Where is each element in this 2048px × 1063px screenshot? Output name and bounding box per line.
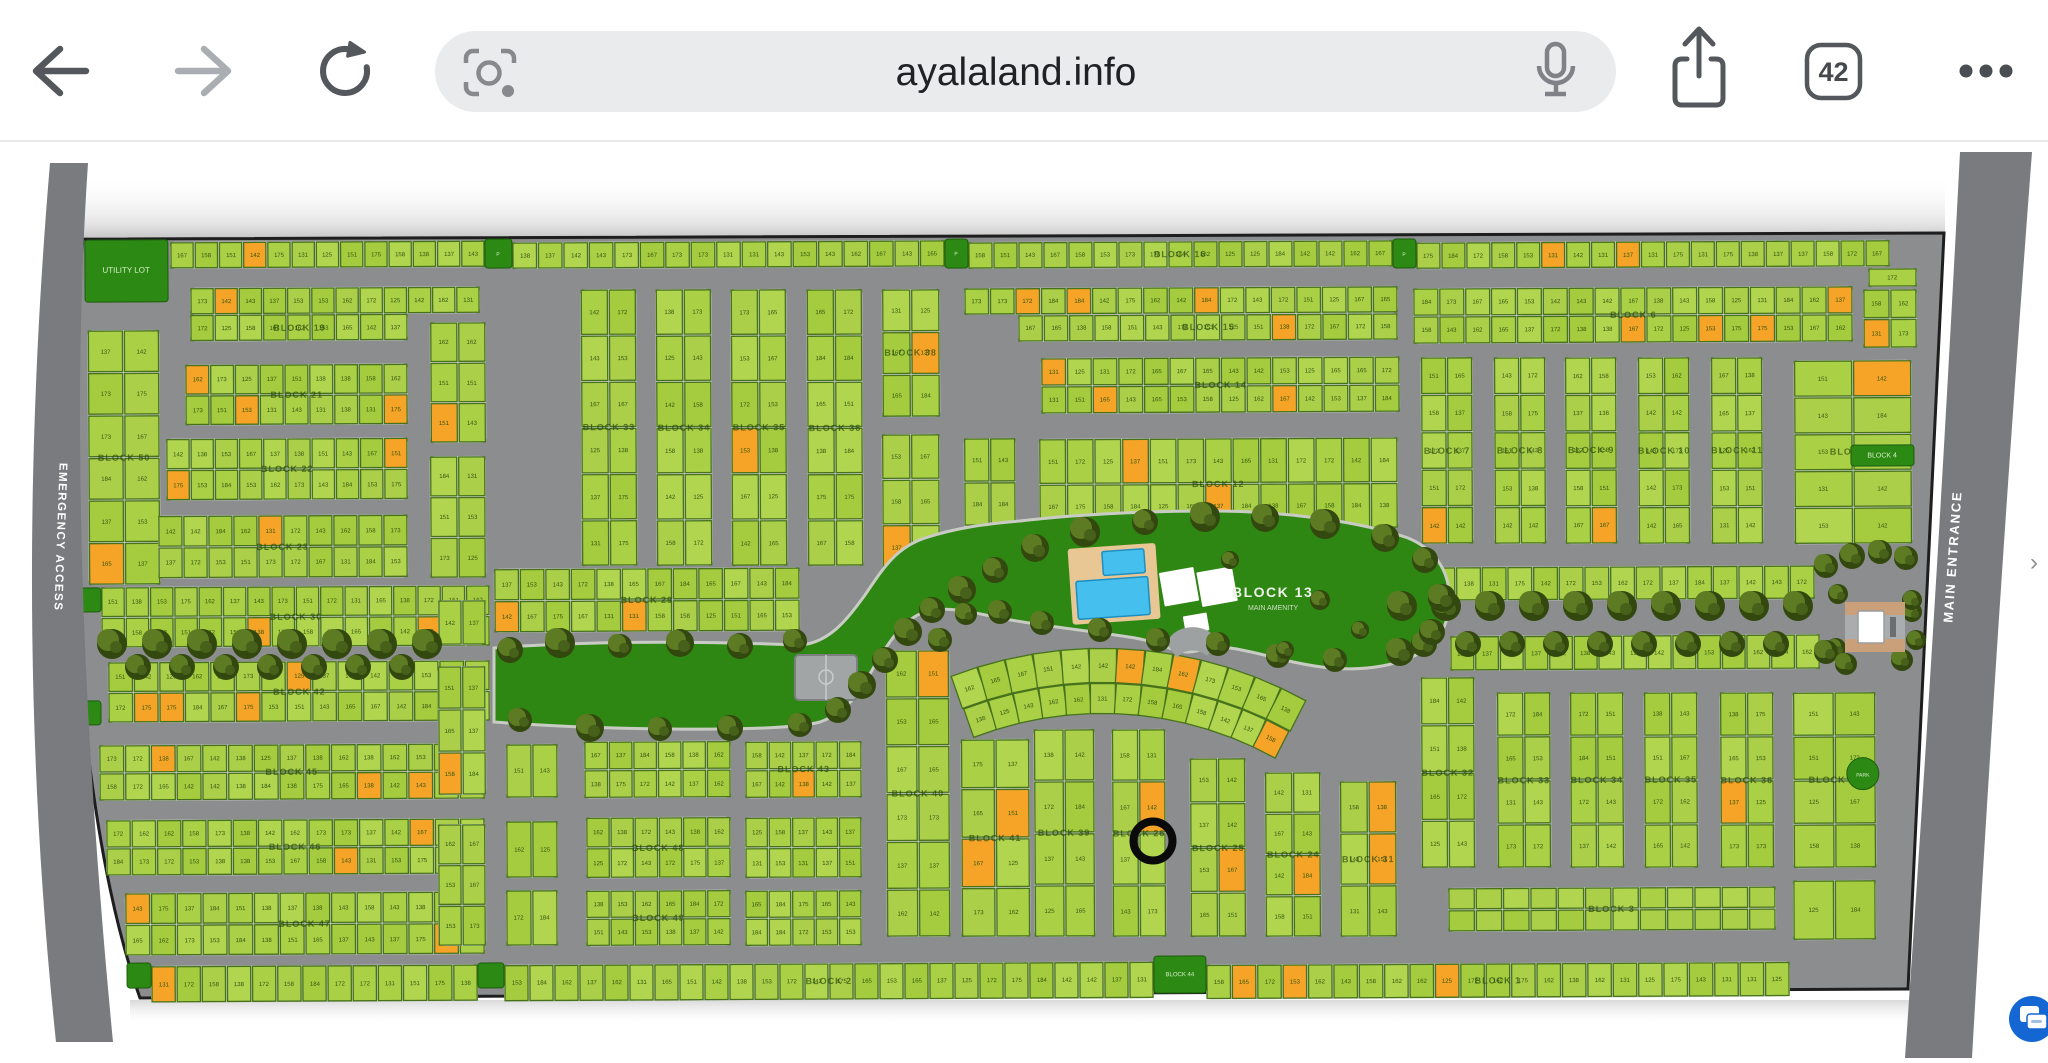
- svg-text:173: 173: [316, 831, 327, 837]
- svg-text:184: 184: [261, 784, 272, 790]
- svg-text:142: 142: [589, 310, 600, 316]
- svg-text:138: 138: [341, 376, 352, 382]
- svg-text:158: 158: [1380, 324, 1391, 330]
- svg-text:153: 153: [617, 902, 628, 908]
- svg-text:153: 153: [762, 979, 773, 985]
- svg-text:184: 184: [640, 753, 651, 759]
- svg-text:184: 184: [1421, 300, 1432, 306]
- svg-text:131: 131: [1548, 253, 1559, 259]
- svg-text:173: 173: [101, 435, 112, 441]
- svg-text:151: 151: [226, 253, 237, 259]
- svg-text:175: 175: [274, 253, 285, 259]
- svg-text:172: 172: [1122, 697, 1133, 704]
- svg-text:138: 138: [1748, 252, 1759, 258]
- svg-text:175: 175: [1012, 978, 1023, 984]
- svg-text:162: 162: [1350, 251, 1361, 257]
- svg-text:175: 175: [798, 902, 809, 908]
- svg-text:162: 162: [270, 483, 281, 489]
- svg-text:162: 162: [1009, 910, 1020, 916]
- svg-text:142: 142: [1300, 251, 1311, 257]
- svg-text:167: 167: [1573, 523, 1584, 529]
- svg-text:138: 138: [313, 756, 324, 762]
- svg-text:131: 131: [1100, 370, 1111, 376]
- svg-text:165: 165: [767, 310, 778, 316]
- svg-text:173: 173: [278, 599, 289, 605]
- svg-text:184: 184: [310, 982, 321, 988]
- svg-text:158: 158: [1203, 397, 1214, 403]
- svg-text:142: 142: [1877, 376, 1888, 382]
- svg-text:›: ›: [2030, 549, 2038, 576]
- svg-text:125: 125: [1075, 370, 1086, 376]
- svg-text:165: 165: [769, 541, 780, 547]
- svg-text:143: 143: [365, 937, 376, 943]
- svg-text:184: 184: [1351, 503, 1362, 509]
- svg-text:138: 138: [617, 830, 628, 836]
- svg-text:175: 175: [391, 407, 402, 413]
- svg-text:162: 162: [391, 376, 402, 382]
- svg-text:138: 138: [159, 756, 170, 762]
- svg-text:137: 137: [1357, 396, 1368, 402]
- svg-text:153: 153: [891, 455, 902, 461]
- svg-text:151: 151: [1008, 811, 1019, 817]
- svg-text:167: 167: [370, 704, 381, 710]
- svg-text:125: 125: [1229, 397, 1240, 403]
- svg-text:184: 184: [1201, 298, 1212, 304]
- svg-text:131: 131: [316, 408, 327, 414]
- svg-text:173: 173: [1898, 331, 1909, 337]
- svg-text:172: 172: [578, 582, 589, 588]
- svg-text:142: 142: [1672, 411, 1683, 417]
- svg-text:167: 167: [1628, 327, 1639, 333]
- svg-text:158: 158: [1498, 253, 1509, 259]
- svg-text:184: 184: [342, 482, 353, 488]
- svg-text:138: 138: [1464, 582, 1475, 588]
- svg-text:167: 167: [1329, 324, 1340, 330]
- svg-text:153: 153: [197, 483, 208, 489]
- svg-text:138: 138: [1599, 411, 1610, 417]
- svg-text:184: 184: [972, 502, 983, 508]
- svg-text:142: 142: [1746, 580, 1757, 586]
- svg-text:173: 173: [1148, 909, 1159, 915]
- svg-text:151: 151: [347, 252, 358, 258]
- svg-text:142: 142: [414, 298, 425, 304]
- svg-text:142: 142: [1071, 664, 1082, 671]
- svg-text:167: 167: [647, 253, 658, 259]
- svg-text:142: 142: [1541, 581, 1552, 587]
- svg-text:172: 172: [164, 859, 175, 865]
- svg-text:172: 172: [291, 529, 302, 535]
- svg-text:142: 142: [173, 452, 184, 458]
- svg-text:184: 184: [1130, 504, 1141, 510]
- svg-text:142: 142: [210, 784, 221, 790]
- svg-text:165: 165: [1506, 756, 1517, 762]
- svg-text:125: 125: [693, 495, 704, 501]
- svg-text:151: 151: [594, 930, 605, 936]
- svg-text:173: 173: [391, 528, 402, 534]
- svg-text:173: 173: [139, 860, 150, 866]
- svg-text:143: 143: [1152, 325, 1163, 331]
- svg-text:142: 142: [665, 495, 676, 501]
- svg-text:165: 165: [1719, 411, 1730, 417]
- svg-text:131: 131: [604, 614, 615, 620]
- svg-text:138: 138: [262, 938, 273, 944]
- svg-text:137: 137: [799, 753, 810, 759]
- svg-text:BLOCK 25: BLOCK 25: [1192, 843, 1245, 853]
- svg-text:165: 165: [821, 902, 832, 908]
- svg-text:173: 173: [929, 815, 940, 821]
- svg-text:137: 137: [469, 621, 480, 627]
- svg-text:42: 42: [1818, 57, 1848, 87]
- svg-text:137: 137: [1199, 823, 1210, 829]
- svg-text:172: 172: [640, 782, 651, 788]
- svg-text:142: 142: [665, 782, 676, 788]
- svg-text:162: 162: [342, 298, 353, 304]
- svg-text:172: 172: [843, 310, 854, 316]
- svg-text:151: 151: [1745, 486, 1756, 492]
- svg-text:151: 151: [241, 560, 252, 566]
- svg-text:184: 184: [1851, 908, 1862, 914]
- svg-text:167: 167: [590, 402, 601, 408]
- svg-text:151: 151: [217, 408, 228, 414]
- svg-text:143: 143: [245, 299, 256, 305]
- svg-text:125: 125: [1329, 297, 1340, 303]
- svg-text:142: 142: [930, 911, 941, 917]
- svg-text:153: 153: [1524, 299, 1535, 305]
- svg-text:131: 131: [1747, 977, 1758, 983]
- svg-text:151: 151: [318, 452, 329, 458]
- svg-text:165: 165: [1152, 369, 1163, 375]
- svg-text:153: 153: [1502, 486, 1513, 492]
- svg-text:175: 175: [816, 495, 827, 501]
- svg-text:172: 172: [694, 541, 705, 547]
- svg-text:BLOCK 22: BLOCK 22: [261, 464, 314, 474]
- svg-text:184: 184: [776, 930, 787, 936]
- svg-text:167: 167: [217, 705, 228, 711]
- svg-text:138: 138: [234, 982, 245, 988]
- svg-text:162: 162: [714, 830, 725, 836]
- svg-text:137: 137: [929, 863, 940, 869]
- svg-text:167: 167: [752, 782, 763, 788]
- svg-text:131: 131: [266, 529, 277, 535]
- svg-text:142: 142: [1075, 753, 1086, 759]
- svg-text:131: 131: [752, 861, 763, 867]
- svg-text:151: 151: [294, 705, 305, 711]
- svg-text:184: 184: [1877, 413, 1888, 419]
- svg-text:172: 172: [1887, 275, 1898, 281]
- svg-text:175: 175: [1723, 252, 1734, 258]
- svg-text:143: 143: [316, 529, 327, 535]
- svg-text:167: 167: [1048, 505, 1059, 511]
- svg-text:142: 142: [396, 704, 407, 710]
- svg-text:142: 142: [712, 980, 723, 986]
- svg-text:167: 167: [1375, 251, 1386, 257]
- svg-text:173: 173: [698, 253, 709, 259]
- svg-text:175: 175: [1673, 253, 1684, 259]
- svg-text:184: 184: [1302, 873, 1313, 879]
- svg-text:158: 158: [1349, 805, 1360, 811]
- svg-text:165: 165: [1729, 756, 1740, 762]
- svg-text:165: 165: [706, 582, 717, 588]
- svg-text:BLOCK 43: BLOCK 43: [777, 764, 830, 774]
- svg-text:ayalaland.info: ayalaland.info: [896, 51, 1137, 94]
- svg-text:172: 172: [1797, 580, 1808, 586]
- svg-text:162: 162: [896, 672, 907, 678]
- svg-text:172: 172: [360, 981, 371, 987]
- svg-text:158: 158: [189, 831, 200, 837]
- svg-text:137: 137: [937, 978, 948, 984]
- svg-text:142: 142: [1528, 523, 1539, 529]
- svg-text:162: 162: [612, 980, 623, 986]
- svg-text:137: 137: [166, 560, 177, 566]
- svg-text:BLOCK 45: BLOCK 45: [266, 767, 319, 777]
- svg-text:165: 165: [815, 310, 826, 316]
- svg-text:172: 172: [1355, 324, 1366, 330]
- svg-text:184: 184: [192, 705, 203, 711]
- svg-text:167: 167: [469, 883, 480, 889]
- svg-text:162: 162: [438, 298, 449, 304]
- svg-text:142: 142: [502, 615, 513, 621]
- svg-text:138: 138: [1457, 747, 1468, 753]
- svg-text:167: 167: [1680, 755, 1691, 761]
- svg-text:143: 143: [1457, 842, 1468, 848]
- svg-text:125: 125: [706, 614, 717, 620]
- svg-text:173: 173: [341, 831, 352, 837]
- svg-text:131: 131: [366, 407, 377, 413]
- svg-text:172: 172: [1457, 795, 1468, 801]
- svg-text:175: 175: [141, 706, 152, 712]
- svg-text:125: 125: [593, 861, 604, 867]
- svg-text:167: 167: [184, 756, 195, 762]
- svg-text:158: 158: [1324, 503, 1335, 509]
- svg-text:142: 142: [1125, 664, 1136, 671]
- svg-text:162: 162: [1315, 979, 1326, 985]
- svg-text:BLOCK 2: BLOCK 2: [806, 976, 853, 986]
- svg-text:172: 172: [1126, 369, 1137, 375]
- svg-text:142: 142: [1351, 458, 1362, 464]
- svg-text:131: 131: [159, 982, 170, 988]
- svg-text:125: 125: [1250, 252, 1261, 258]
- svg-text:184: 184: [469, 772, 480, 778]
- svg-text:162: 162: [851, 252, 862, 258]
- svg-text:125: 125: [752, 830, 763, 836]
- svg-text:PARK: PARK: [1856, 773, 1870, 779]
- svg-text:151: 151: [444, 686, 455, 692]
- svg-text:143: 143: [1075, 857, 1086, 863]
- svg-text:172: 172: [1653, 327, 1664, 333]
- svg-text:165: 165: [862, 979, 873, 985]
- svg-text:138: 138: [236, 756, 247, 762]
- svg-text:BLOCK 8: BLOCK 8: [1497, 445, 1544, 455]
- svg-text:172: 172: [1044, 805, 1055, 811]
- svg-text:167: 167: [137, 435, 148, 441]
- svg-text:162: 162: [241, 529, 252, 535]
- svg-text:158: 158: [655, 614, 666, 620]
- svg-text:153: 153: [775, 861, 786, 867]
- svg-text:125: 125: [322, 253, 333, 259]
- svg-text:131: 131: [629, 614, 640, 620]
- svg-text:165: 165: [892, 394, 903, 400]
- svg-text:143: 143: [845, 902, 856, 908]
- svg-text:158: 158: [445, 772, 456, 778]
- svg-text:131: 131: [1818, 487, 1829, 493]
- svg-text:125: 125: [1045, 909, 1056, 915]
- svg-text:142: 142: [1325, 251, 1336, 257]
- svg-text:165: 165: [929, 719, 940, 725]
- svg-text:162: 162: [1809, 298, 1820, 304]
- svg-text:175: 175: [416, 937, 427, 943]
- svg-text:153: 153: [242, 408, 253, 414]
- svg-text:167: 167: [920, 454, 931, 460]
- svg-text:153: 153: [768, 402, 779, 408]
- svg-text:138: 138: [604, 582, 615, 588]
- svg-text:137: 137: [390, 937, 401, 943]
- svg-text:165: 165: [1455, 374, 1466, 380]
- svg-text:142: 142: [370, 673, 381, 679]
- svg-text:172: 172: [133, 785, 144, 791]
- svg-text:143: 143: [338, 906, 349, 912]
- svg-text:162: 162: [562, 980, 573, 986]
- svg-text:153: 153: [1592, 581, 1603, 587]
- svg-text:172: 172: [197, 326, 208, 332]
- svg-text:143: 143: [132, 907, 143, 913]
- svg-text:158: 158: [1214, 980, 1225, 986]
- svg-text:142: 142: [1062, 978, 1073, 984]
- svg-text:131: 131: [1268, 459, 1279, 465]
- svg-text:137: 137: [1455, 411, 1466, 417]
- svg-text:125: 125: [1809, 908, 1820, 914]
- svg-text:162: 162: [1573, 374, 1584, 380]
- svg-text:143: 143: [1772, 580, 1783, 586]
- svg-text:172: 172: [617, 310, 628, 316]
- svg-text:175: 175: [371, 252, 382, 258]
- svg-text:142: 142: [1680, 843, 1691, 849]
- svg-text:137: 137: [339, 938, 350, 944]
- svg-text:137: 137: [138, 562, 149, 568]
- svg-text:143: 143: [1025, 253, 1036, 259]
- svg-text:172: 172: [259, 982, 270, 988]
- svg-text:175: 175: [1757, 326, 1768, 332]
- svg-text:125: 125: [665, 356, 676, 362]
- svg-text:143: 143: [1302, 831, 1313, 837]
- svg-text:125: 125: [920, 308, 931, 314]
- svg-text:151: 151: [1430, 747, 1441, 753]
- svg-text:173: 173: [107, 757, 118, 763]
- svg-text:162: 162: [1898, 301, 1909, 307]
- svg-text:173: 173: [672, 253, 683, 259]
- svg-text:137: 137: [230, 599, 241, 605]
- svg-text:142: 142: [1456, 699, 1467, 705]
- svg-text:153: 153: [446, 924, 457, 930]
- svg-text:153: 153: [846, 930, 857, 936]
- svg-text:153: 153: [1818, 524, 1829, 530]
- svg-text:173: 173: [997, 299, 1008, 305]
- svg-text:172: 172: [424, 598, 435, 604]
- svg-text:138: 138: [1653, 299, 1664, 305]
- svg-text:158: 158: [1103, 505, 1114, 511]
- svg-text:137: 137: [287, 906, 298, 912]
- svg-text:125: 125: [468, 556, 479, 562]
- svg-text:158: 158: [1809, 844, 1820, 850]
- svg-text:165: 165: [665, 902, 676, 908]
- svg-text:167: 167: [527, 615, 538, 621]
- svg-text:172: 172: [1075, 460, 1086, 466]
- svg-text:167: 167: [1177, 369, 1188, 375]
- svg-text:167: 167: [768, 356, 779, 362]
- svg-text:158: 158: [1573, 486, 1584, 492]
- svg-text:125: 125: [540, 847, 551, 853]
- svg-text:143: 143: [1606, 800, 1617, 806]
- svg-text:172: 172: [1550, 327, 1561, 333]
- svg-text:167: 167: [1354, 297, 1365, 303]
- svg-text:162: 162: [593, 830, 604, 836]
- svg-text:138: 138: [240, 831, 251, 837]
- svg-text:138: 138: [1580, 651, 1591, 657]
- svg-text:165: 165: [1203, 369, 1214, 375]
- svg-text:184: 184: [113, 860, 124, 866]
- svg-text:137: 137: [444, 252, 455, 258]
- svg-text:158: 158: [1075, 253, 1086, 259]
- svg-text:142: 142: [1176, 298, 1187, 304]
- svg-text:142: 142: [1087, 978, 1098, 984]
- svg-text:184: 184: [209, 906, 220, 912]
- svg-text:BLOCK 34: BLOCK 34: [658, 423, 711, 433]
- svg-text:143: 143: [1252, 298, 1263, 304]
- svg-text:151: 151: [439, 381, 450, 387]
- svg-text:138: 138: [261, 906, 272, 912]
- svg-text:BLOCK 34: BLOCK 34: [1571, 775, 1624, 785]
- svg-text:142: 142: [1745, 523, 1756, 529]
- svg-text:172: 172: [1227, 298, 1238, 304]
- svg-text:BLOCK 19: BLOCK 19: [273, 323, 326, 333]
- svg-text:151: 151: [439, 421, 450, 427]
- svg-text:137: 137: [822, 861, 833, 867]
- svg-text:138: 138: [1379, 503, 1390, 509]
- svg-text:162: 162: [159, 938, 170, 944]
- svg-text:158: 158: [1502, 411, 1513, 417]
- svg-text:138: 138: [1850, 844, 1861, 850]
- svg-text:143: 143: [292, 408, 303, 414]
- svg-text:BLOCK 50: BLOCK 50: [98, 453, 151, 463]
- svg-text:172: 172: [115, 706, 126, 712]
- svg-text:138: 138: [690, 830, 701, 836]
- svg-text:143: 143: [1849, 712, 1860, 718]
- svg-text:153: 153: [137, 520, 148, 526]
- svg-text:167: 167: [367, 451, 378, 457]
- svg-text:142: 142: [1502, 523, 1513, 529]
- svg-text:131: 131: [1722, 977, 1733, 983]
- svg-text:173: 173: [243, 674, 254, 680]
- svg-text:153: 153: [740, 356, 751, 362]
- svg-text:172: 172: [1455, 486, 1466, 492]
- svg-text:137: 137: [101, 520, 112, 526]
- svg-text:165: 165: [1239, 980, 1250, 986]
- svg-text:175: 175: [1755, 712, 1766, 718]
- svg-text:167: 167: [1872, 251, 1883, 257]
- svg-text:173: 173: [217, 377, 228, 383]
- svg-text:142: 142: [775, 753, 786, 759]
- svg-text:158: 158: [1823, 252, 1834, 258]
- svg-text:165: 165: [816, 402, 827, 408]
- svg-text:172: 172: [1528, 373, 1539, 379]
- svg-text:143: 143: [596, 253, 607, 259]
- svg-text:162: 162: [164, 831, 175, 837]
- svg-text:153: 153: [467, 515, 478, 521]
- svg-text:137: 137: [1531, 651, 1542, 657]
- svg-text:167: 167: [1274, 832, 1285, 838]
- svg-text:158: 158: [891, 500, 902, 506]
- svg-text:162: 162: [714, 782, 725, 788]
- svg-text:165: 165: [1357, 368, 1368, 374]
